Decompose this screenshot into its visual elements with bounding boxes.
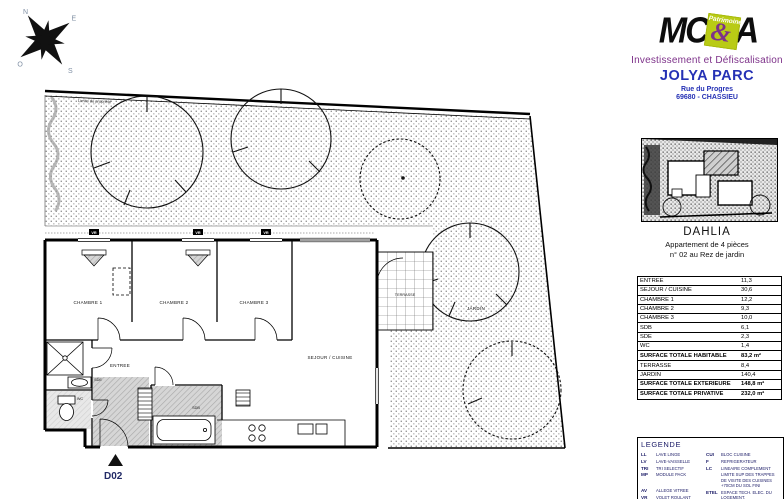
room-label-sdb: SDB (192, 406, 200, 410)
logo-badge: Patrimoine & (704, 12, 741, 49)
table-row: SDB6,1 (638, 322, 781, 331)
legend-text: LINEAIRE COMPLEMENT (721, 466, 771, 471)
compass-n: N (23, 9, 28, 16)
row-value: 148,8 m² (739, 381, 781, 387)
legend-right-column: CUIBLOC CUISINE FREFRIGERATEUR LCLINEAIR… (706, 452, 781, 499)
table-row: SEJOUR / CUISINE30,6 (638, 285, 781, 294)
room-label-ch2: CHAMBRE 2 (160, 300, 189, 305)
legend-abbr: F (706, 459, 721, 464)
legend-abbr: LL (641, 452, 656, 457)
table-row: JARDIN140,4 (638, 370, 781, 379)
unit-label: D02 (104, 471, 123, 482)
vr-tag-label: VR (195, 231, 201, 235)
row-label: JARDIN (638, 372, 739, 378)
table-row-total-exterieure: SURFACE TOTALE EXTERIEURE148,8 m² (638, 379, 781, 389)
project-address-line2: 69680 - CHASSIEU (630, 94, 784, 101)
legend-text: LAVE LINGE (656, 452, 680, 457)
legend-text: ALLEGE VITREE (656, 488, 689, 493)
legend-item: LCLINEAIRE COMPLEMENT (706, 466, 781, 471)
table-row: CHAMBRE 310,0 (638, 313, 781, 322)
room-label-ch1: CHAMBRE 1 (74, 300, 103, 305)
row-label: SURFACE TOTALE EXTERIEURE (638, 381, 739, 387)
legend-text: LIMITE SUP DES TRAPPES DE VISITE DES CUI… (721, 472, 781, 488)
vr-tags: VR VR VR (89, 229, 271, 235)
legend-left-column: LLLAVE LINGE LVLAVE-VAISSELLE TRITRI SEL… (641, 452, 703, 499)
legend-item: ETELESPACE TECH. ELEC. DU LOGEMENT. (706, 490, 781, 499)
apartment-name: DAHLIA (630, 226, 784, 238)
row-label: WC (638, 343, 739, 349)
row-label: CHAMBRE 3 (638, 315, 739, 321)
room-label-ch3: CHAMBRE 3 (240, 300, 269, 305)
legend-abbr: AV (641, 488, 656, 493)
row-label: SURFACE TOTALE HABITABLE (638, 353, 739, 359)
room-label-sejour: SEJOUR / CUISINE (307, 355, 352, 360)
project-address-line1: Rue du Progres (630, 86, 784, 93)
legend-title: LEGENDE (641, 440, 783, 449)
room-label-entree: ENTREE (110, 363, 130, 368)
row-value: 10,0 (739, 315, 781, 321)
site-plan-thumbnail (641, 138, 778, 222)
legend-item: AVALLEGE VITREE (641, 488, 703, 493)
legend-text: MODULE PACK (656, 472, 686, 477)
table-row: SDE2,3 (638, 332, 781, 341)
legend-text: ESPACE TECH. ELEC. DU LOGEMENT. (721, 490, 781, 499)
row-value: 1,4 (739, 343, 781, 349)
legend-item: LVLAVE-VAISSELLE (641, 459, 703, 464)
row-value: 8,4 (739, 363, 781, 369)
row-label: CHAMBRE 2 (638, 306, 739, 312)
legend-item: MPMODULE PACK (641, 472, 703, 477)
row-label: CHAMBRE 1 (638, 297, 739, 303)
legend-item: TRITRI SELECTIF (641, 466, 703, 471)
row-value: 12,2 (739, 297, 781, 303)
apartment-body: VR VR VR (45, 229, 403, 482)
project-name: JOLYA PARC (630, 68, 784, 84)
legend-item: LLLAVE LINGE (641, 452, 703, 457)
apartment-floor: n° 02 au Rez de jardin (630, 250, 784, 259)
table-row-total-habitable: SURFACE TOTALE HABITABLE83,2 m² (638, 350, 781, 360)
floor-plan: N E S O (0, 0, 630, 499)
legend-abbr: CUI (706, 452, 721, 457)
legend-abbr: ETEL (706, 490, 721, 499)
row-label: SDE (638, 334, 739, 340)
legend-abbr: LV (641, 459, 656, 464)
areas-table: ENTREE11,3 SEJOUR / CUISINE30,6 CHAMBRE … (637, 276, 782, 400)
room-label-terrasse: TERRASSE (395, 293, 416, 297)
room-label-jardin: JARDIN (467, 306, 485, 311)
legend-box: LEGENDE LLLAVE LINGE LVLAVE-VAISSELLE TR… (637, 437, 784, 499)
row-label: SEJOUR / CUISINE (638, 287, 739, 293)
legend-item: CUIBLOC CUISINE (706, 452, 781, 457)
row-value: 9,3 (739, 306, 781, 312)
entry-marker: D02 (104, 454, 123, 482)
vr-tag-label: VR (263, 231, 269, 235)
compass-o: O (17, 62, 23, 69)
terrasse-area: TERRASSE (377, 252, 433, 330)
room-label-sde: SDE (94, 378, 102, 382)
company-logo: MC Patrimoine & A (634, 8, 782, 54)
row-value: 2,3 (739, 334, 781, 340)
table-row: WC1,4 (638, 341, 781, 350)
table-row-total-privative: SURFACE TOTALE PRIVATIVE232,0 m² (638, 389, 781, 399)
row-value: 232,0 m² (739, 391, 781, 397)
legend-abbr: TRI (641, 466, 656, 471)
row-value: 11,3 (739, 278, 781, 284)
legend-abbr: VR (641, 495, 656, 499)
legend-abbr: MP (641, 472, 656, 477)
legend-abbr: LC (706, 466, 721, 471)
legend-text: BLOC CUISINE (721, 452, 751, 457)
legend-item: VRVOLET ROULANT (641, 495, 703, 499)
legend-text: VOLET ROULANT (656, 495, 691, 499)
row-value: 83,2 m² (739, 353, 781, 359)
compass-s: S (68, 68, 73, 75)
row-value: 30,6 (739, 287, 781, 293)
table-row: CHAMBRE 112,2 (638, 295, 781, 304)
legend-text: TRI SELECTIF (656, 466, 684, 471)
row-label: SURFACE TOTALE PRIVATIVE (638, 391, 739, 397)
logo-ampersand: & (708, 16, 732, 49)
table-row: TERRASSE8,4 (638, 360, 781, 369)
legend-abbr (706, 472, 721, 488)
legend-item: FREFRIGERATEUR (706, 459, 781, 464)
company-tagline: Investissement et Défiscalisation (630, 55, 784, 66)
row-label: SDB (638, 325, 739, 331)
row-label: ENTREE (638, 278, 739, 284)
vr-tag-label: VR (91, 231, 97, 235)
plan-sheet: N E S O (0, 0, 784, 499)
row-label: TERRASSE (638, 363, 739, 369)
legend-text: LAVE-VAISSELLE (656, 459, 690, 464)
table-row: ENTREE11,3 (638, 277, 781, 285)
logo-mc-text: MC (659, 11, 708, 52)
info-panel: MC Patrimoine & A Investissement et Défi… (630, 0, 784, 499)
legend-item: LIMITE SUP DES TRAPPES DE VISITE DES CUI… (706, 472, 781, 488)
table-row: CHAMBRE 29,3 (638, 304, 781, 313)
compass-icon: N E S O (0, 0, 103, 99)
row-value: 140,4 (739, 372, 781, 378)
legend-text: REFRIGERATEUR (721, 459, 757, 464)
row-value: 6,1 (739, 325, 781, 331)
apartment-type: Appartement de 4 pièces (630, 240, 784, 249)
compass-e: E (71, 15, 76, 22)
room-label-wc: WC (77, 397, 84, 401)
